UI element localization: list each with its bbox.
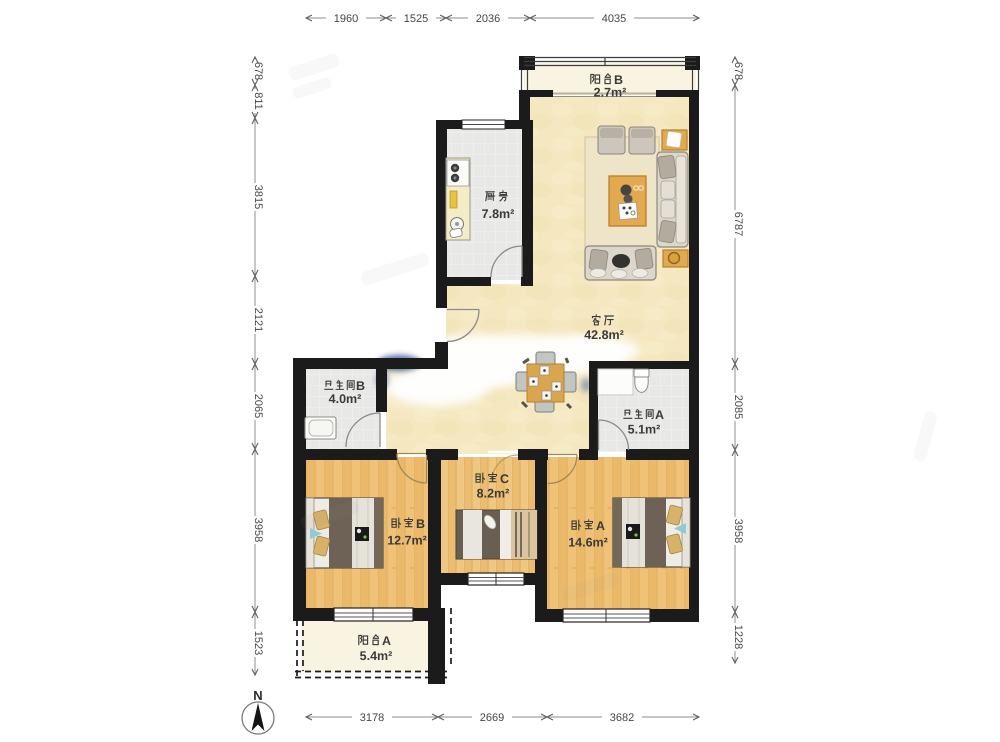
svg-text:A: A: [596, 519, 605, 533]
svg-text:3958: 3958: [252, 518, 264, 542]
svg-text:42.8m²: 42.8m²: [584, 328, 624, 342]
svg-text:4035: 4035: [602, 13, 626, 25]
svg-text:B: B: [416, 517, 425, 531]
svg-text:678: 678: [732, 62, 744, 80]
svg-text:1523: 1523: [252, 631, 264, 655]
svg-text:C: C: [500, 472, 509, 486]
svg-text:2085: 2085: [732, 395, 744, 419]
svg-text:1525: 1525: [404, 13, 428, 25]
svg-text:8.2m²: 8.2m²: [477, 487, 510, 501]
svg-text:678: 678: [252, 62, 264, 80]
svg-text:3815: 3815: [252, 185, 264, 209]
svg-text:2121: 2121: [252, 308, 264, 332]
svg-text:3682: 3682: [610, 712, 634, 724]
svg-text:A: A: [382, 634, 391, 648]
svg-text:12.7m²: 12.7m²: [387, 534, 427, 548]
svg-text:2036: 2036: [476, 13, 500, 25]
svg-text:3958: 3958: [732, 519, 744, 543]
svg-text:2.7m²: 2.7m²: [594, 86, 627, 100]
svg-text:5.4m²: 5.4m²: [360, 649, 393, 663]
svg-text:2669: 2669: [480, 712, 504, 724]
svg-text:3178: 3178: [360, 712, 384, 724]
svg-text:N: N: [253, 688, 262, 703]
svg-text:1960: 1960: [334, 13, 358, 25]
svg-text:4.0m²: 4.0m²: [329, 392, 362, 406]
svg-text:2065: 2065: [252, 394, 264, 418]
svg-text:A: A: [655, 408, 664, 422]
svg-text:7.8m²: 7.8m²: [482, 207, 515, 221]
svg-text:B: B: [356, 379, 365, 393]
svg-text:5.1m²: 5.1m²: [628, 423, 661, 437]
svg-text:6787: 6787: [732, 212, 744, 236]
svg-text:1228: 1228: [732, 625, 744, 649]
svg-text:14.6m²: 14.6m²: [568, 536, 608, 550]
svg-text:811: 811: [252, 92, 264, 110]
